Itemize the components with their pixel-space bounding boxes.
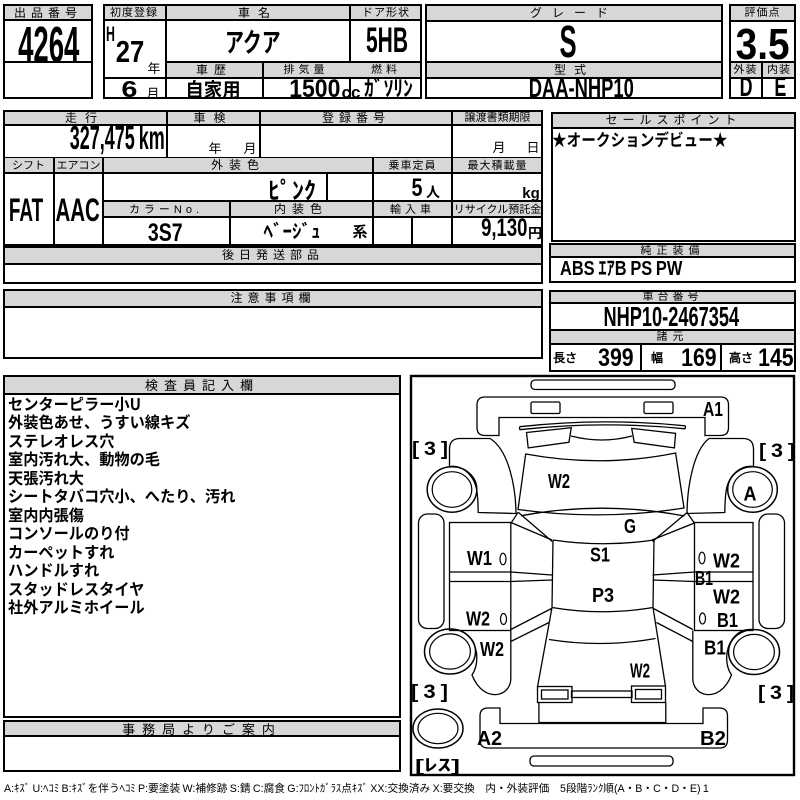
svg-text:W2: W2 xyxy=(713,545,740,574)
svg-text:[ 3 ]: [ 3 ] xyxy=(412,434,448,461)
svg-text:[ 3 ]: [ 3 ] xyxy=(759,436,795,463)
svg-text:B2: B2 xyxy=(700,722,726,751)
svg-text:[ 3 ]: [ 3 ] xyxy=(411,677,448,704)
svg-text:B1: B1 xyxy=(695,562,713,591)
svg-text:S1: S1 xyxy=(590,539,610,568)
svg-text:[ 3 ]: [ 3 ] xyxy=(758,678,794,705)
svg-text:W2: W2 xyxy=(480,633,504,662)
svg-text:B1: B1 xyxy=(704,632,726,661)
svg-text:A2: A2 xyxy=(477,722,502,751)
svg-text:A: A xyxy=(744,478,757,507)
svg-text:W1: W1 xyxy=(467,542,492,571)
svg-text:W2: W2 xyxy=(466,603,490,632)
svg-text:A1: A1 xyxy=(703,393,723,422)
svg-text:[ﾚｽ]: [ﾚｽ] xyxy=(415,751,460,776)
svg-text:P3: P3 xyxy=(592,579,614,608)
svg-text:B1: B1 xyxy=(717,604,738,633)
svg-text:W2: W2 xyxy=(548,465,570,494)
svg-text:G: G xyxy=(624,510,636,539)
svg-text:W2: W2 xyxy=(630,655,650,684)
